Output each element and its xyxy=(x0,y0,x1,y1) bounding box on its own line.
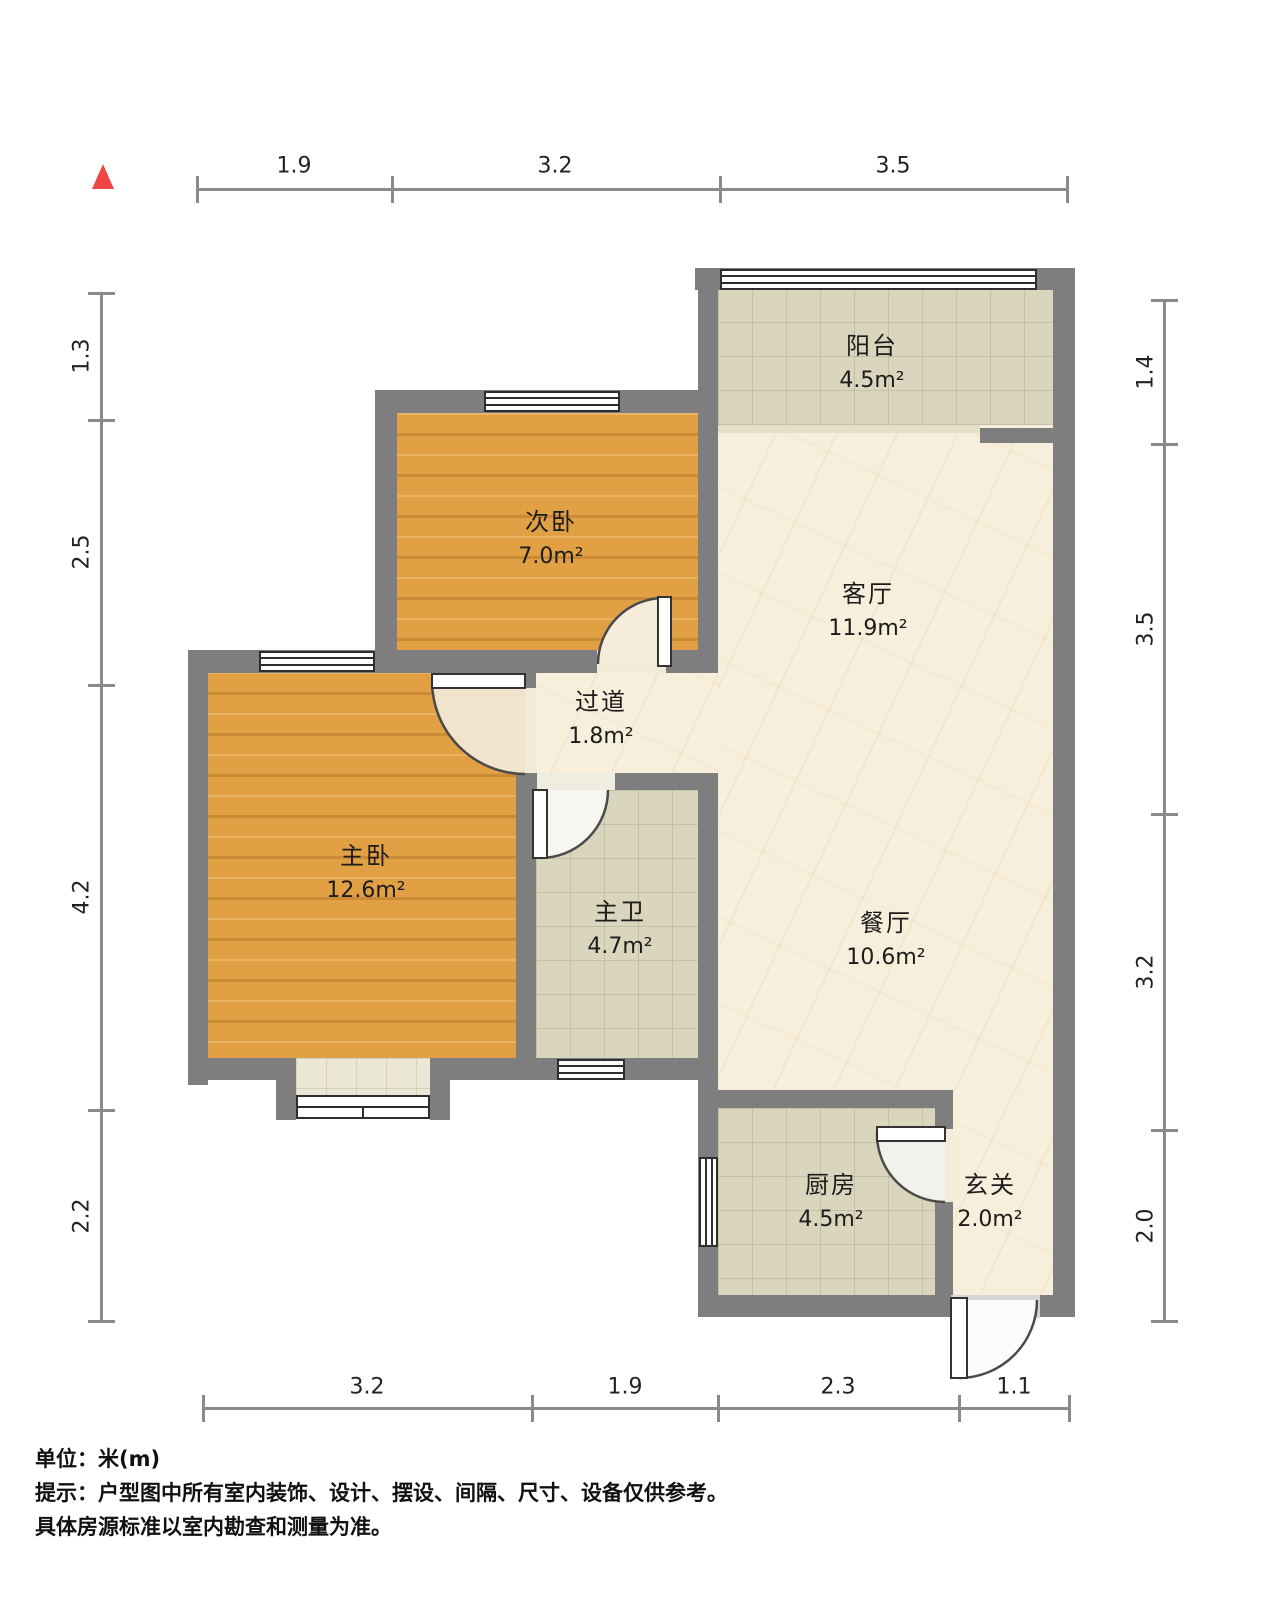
door-master-bedroom xyxy=(428,670,532,780)
dim-label-left-2: 4.2 xyxy=(70,880,95,915)
dim-tick xyxy=(1068,1395,1071,1422)
wall xyxy=(430,1058,450,1120)
room-label-master-bedroom: 主卧 12.6m² xyxy=(326,836,405,903)
dim-tick xyxy=(88,1109,115,1112)
room-label-kitchen: 厨房 4.5m² xyxy=(798,1165,863,1232)
dim-line-bottom xyxy=(203,1407,1070,1410)
dim-tick xyxy=(717,1395,720,1422)
window-kitchen xyxy=(699,1157,718,1247)
dim-tick xyxy=(531,1395,534,1422)
dim-label-left-3: 2.2 xyxy=(70,1199,95,1234)
dim-line-left xyxy=(100,293,103,1322)
dim-tick xyxy=(958,1395,961,1422)
disclaimer-line-1: 提示：户型图中所有室内装饰、设计、摆设、间隔、尺寸、设备仅供参考。 xyxy=(35,1476,728,1510)
wall xyxy=(375,390,397,652)
dim-label-bottom-1: 1.9 xyxy=(608,1375,643,1400)
room-label-balcony: 阳台 4.5m² xyxy=(839,326,904,393)
wall xyxy=(698,1090,953,1108)
wall xyxy=(1040,1295,1075,1317)
window-master-bathroom xyxy=(557,1059,625,1080)
room-label-entryway: 玄关 2.0m² xyxy=(957,1165,1022,1232)
door-second-bedroom xyxy=(594,594,678,674)
wall xyxy=(698,1295,951,1317)
dim-label-right-1: 3.5 xyxy=(1134,612,1159,647)
disclaimer: 单位：米(m) 提示：户型图中所有室内装饰、设计、摆设、间隔、尺寸、设备仅供参考… xyxy=(35,1442,728,1544)
wall xyxy=(188,1058,276,1080)
wall xyxy=(615,773,698,790)
window-balcony xyxy=(720,269,1037,290)
dim-tick xyxy=(202,1395,205,1422)
room-label-living-room: 客厅 11.9m² xyxy=(828,574,907,641)
room-label-hallway: 过道 1.8m² xyxy=(568,682,633,749)
balcony-threshold xyxy=(718,425,980,433)
door-master-bathroom xyxy=(530,784,618,864)
room-label-master-bathroom: 主卫 4.7m² xyxy=(587,892,652,959)
disclaimer-line-2: 具体房源标准以室内勘查和测量为准。 xyxy=(35,1510,728,1544)
door-kitchen xyxy=(873,1123,953,1208)
dim-label-right-3: 2.0 xyxy=(1134,1209,1159,1244)
wall xyxy=(450,1058,536,1080)
dim-label-left-0: 1.3 xyxy=(70,339,95,374)
north-triangle-icon xyxy=(92,164,114,189)
wall xyxy=(1053,268,1075,1317)
dim-tick xyxy=(1151,443,1178,446)
dim-tick xyxy=(88,419,115,422)
dim-label-right-2: 3.2 xyxy=(1134,955,1159,990)
dim-tick xyxy=(1066,176,1069,203)
dim-tick xyxy=(88,1320,115,1323)
dim-tick xyxy=(719,176,722,203)
room-label-second-bedroom: 次卧 7.0m² xyxy=(518,502,583,569)
dim-label-bottom-0: 3.2 xyxy=(350,1375,385,1400)
dim-label-top-2: 3.5 xyxy=(876,154,911,179)
dim-tick xyxy=(1151,299,1178,302)
dim-line-top xyxy=(197,188,1068,191)
wall xyxy=(698,773,718,1090)
dim-tick xyxy=(391,176,394,203)
dim-tick xyxy=(196,176,199,203)
window-bay xyxy=(296,1095,430,1119)
dim-label-bottom-3: 1.1 xyxy=(997,1375,1032,1400)
dim-line-right xyxy=(1163,300,1166,1322)
dim-label-left-1: 2.5 xyxy=(70,535,95,570)
room-label-dining-room: 餐厅 10.6m² xyxy=(846,903,925,970)
door-entry xyxy=(947,1294,1041,1384)
floor-plan: 阳台 4.5m² 次卧 7.0m² 客厅 11.9m² 过道 1.8m² 主卧 … xyxy=(0,0,1265,1598)
unit-note: 单位：米(m) xyxy=(35,1442,728,1476)
dim-tick xyxy=(1151,1320,1178,1323)
wall xyxy=(188,650,208,1085)
dim-label-bottom-2: 2.3 xyxy=(821,1375,856,1400)
dim-label-right-0: 1.4 xyxy=(1134,355,1159,390)
wall xyxy=(980,428,1053,443)
dim-label-top-1: 3.2 xyxy=(538,154,573,179)
dim-label-top-0: 1.9 xyxy=(277,154,312,179)
window-second-bedroom xyxy=(484,391,620,412)
wall xyxy=(935,1202,953,1295)
window-master-bedroom xyxy=(259,651,375,672)
dim-tick xyxy=(88,292,115,295)
wall xyxy=(698,268,718,430)
wall xyxy=(698,430,718,672)
wall xyxy=(276,1058,296,1120)
dim-tick xyxy=(1151,813,1178,816)
floor-living-dining xyxy=(718,425,1053,1090)
dim-tick xyxy=(1151,1129,1178,1132)
dim-tick xyxy=(88,684,115,687)
floor-bay-window xyxy=(296,1058,430,1095)
